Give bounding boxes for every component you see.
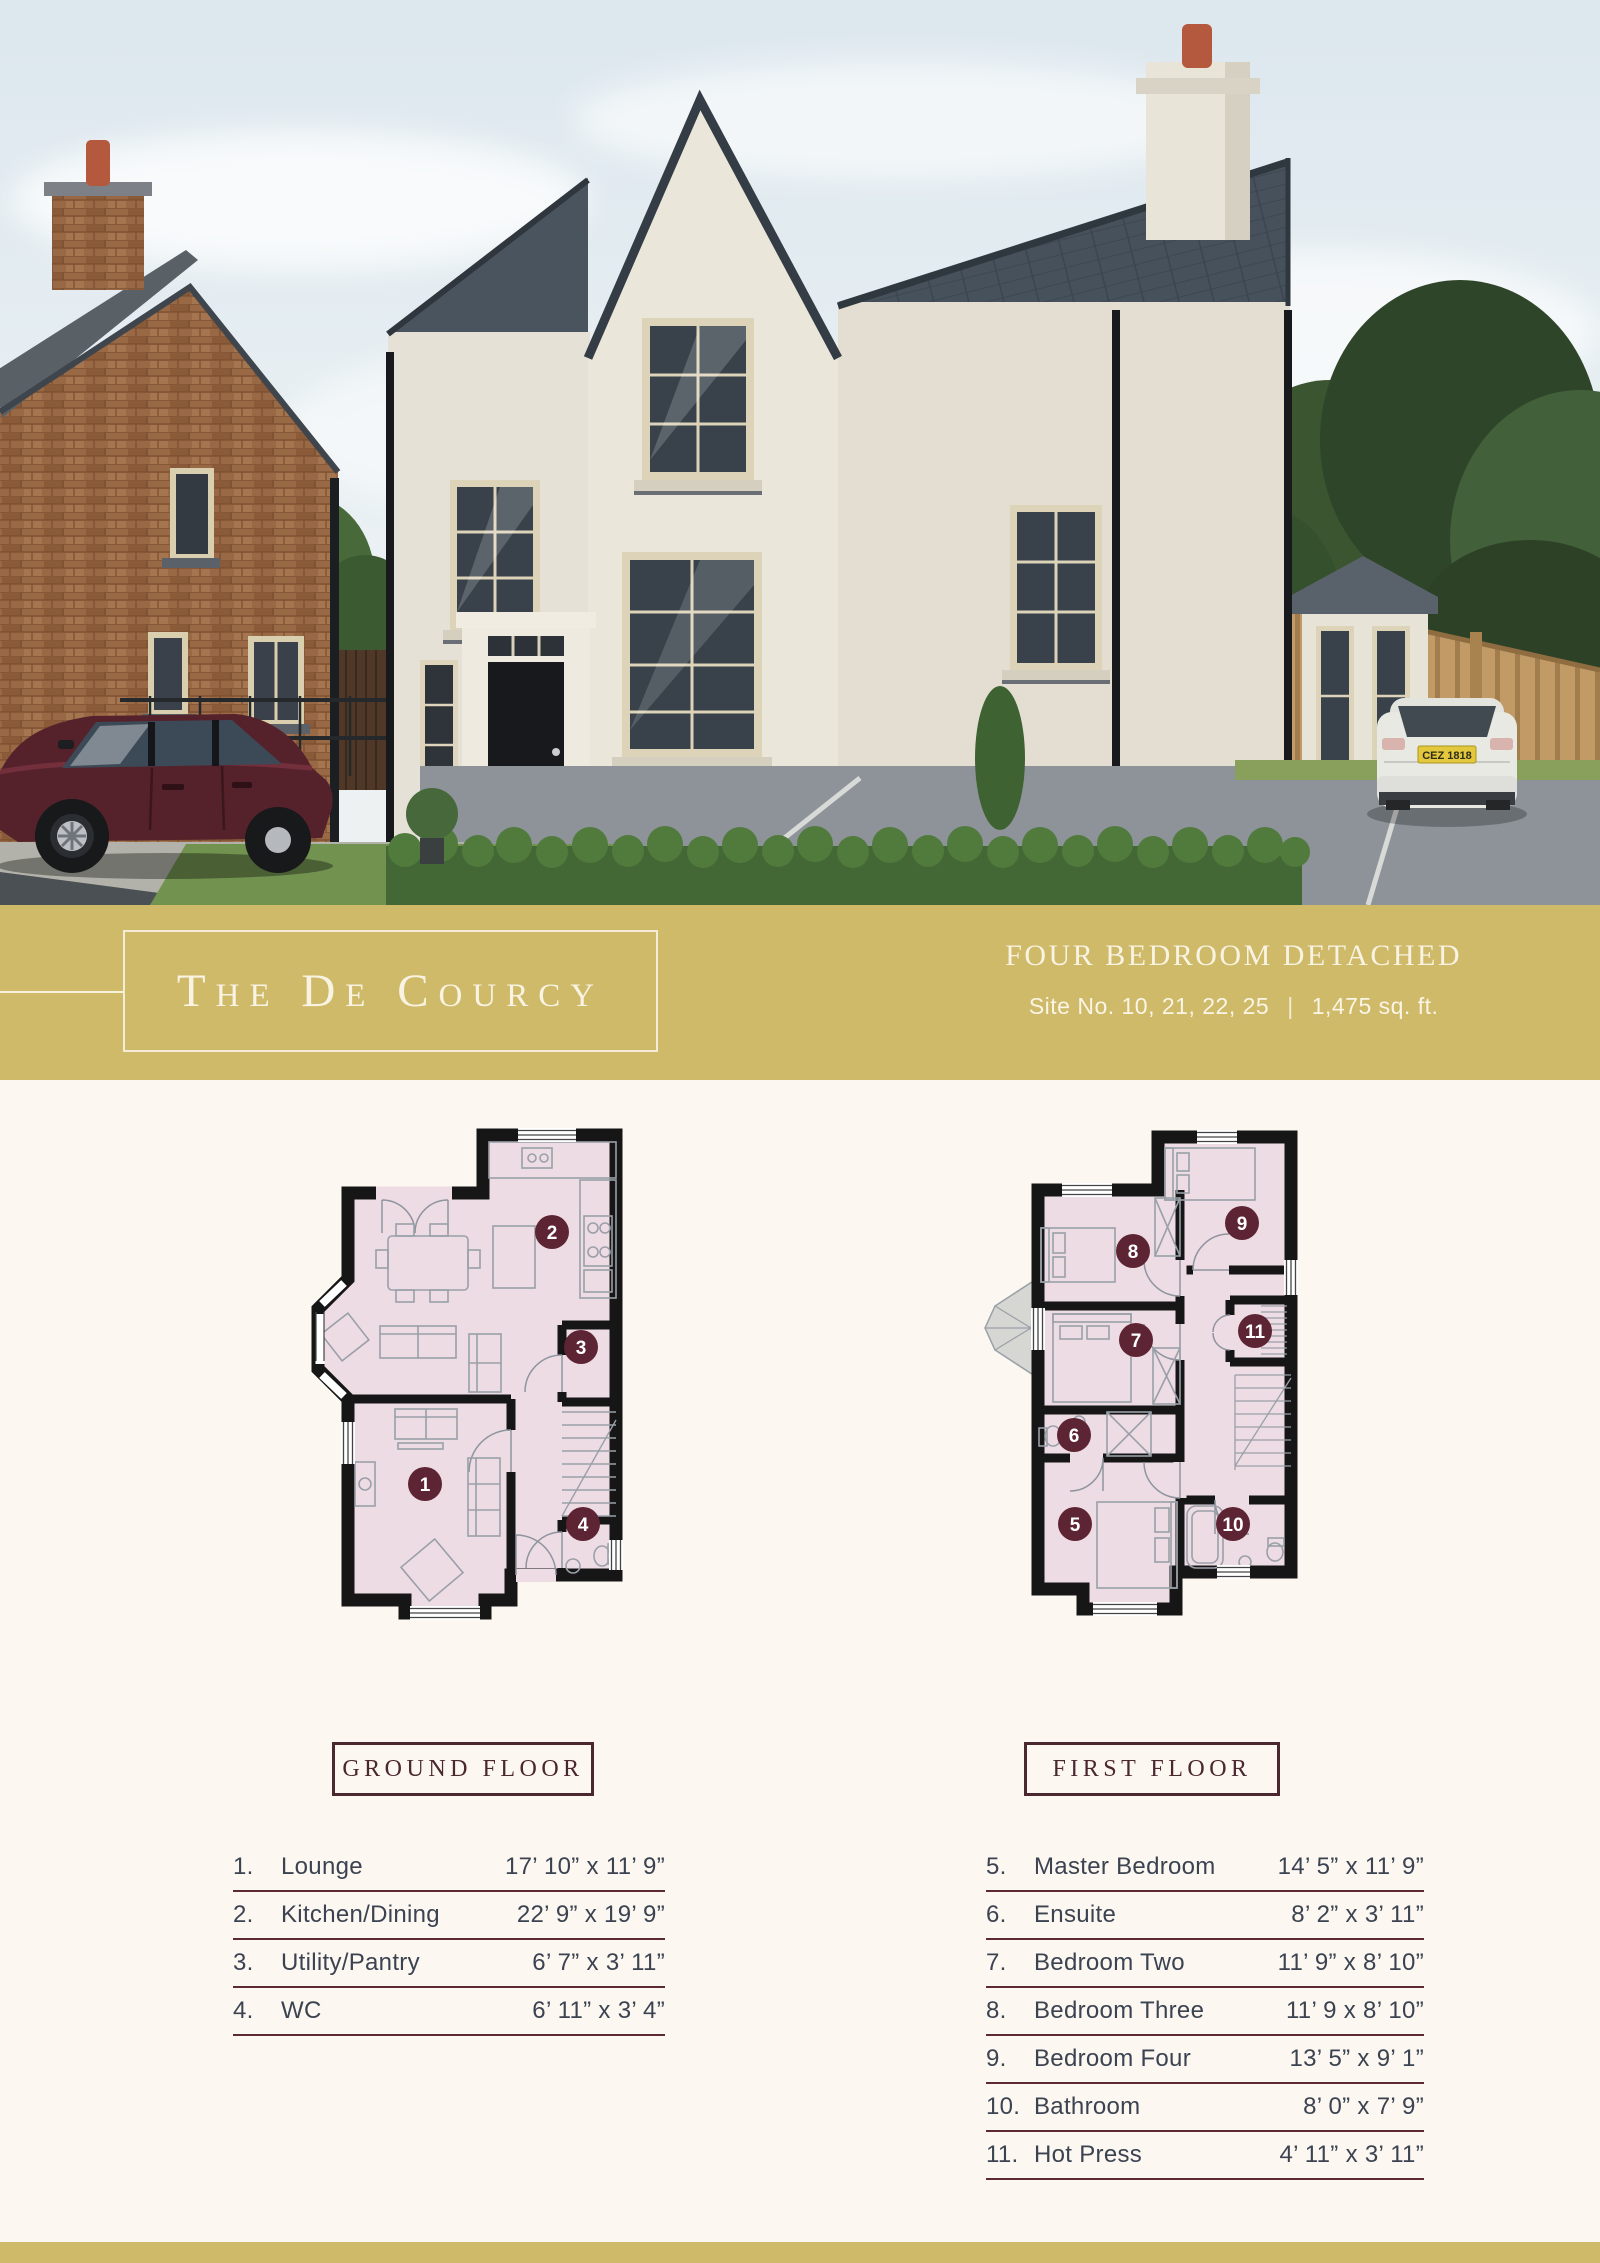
main-block-window xyxy=(1002,505,1110,684)
svg-text:10: 10 xyxy=(1222,1515,1243,1536)
brochure-page: CEZ 1818 xyxy=(0,0,1600,2263)
footer-strip xyxy=(0,2242,1600,2263)
title-box: The De Courcy xyxy=(123,930,658,1052)
room-name: Bedroom Three xyxy=(1034,1997,1286,2025)
ground-floor-table: 1. Lounge 17’ 10” x 11’ 9” 2. Kitchen/Di… xyxy=(233,1844,665,2036)
room-name: Ensuite xyxy=(1034,1901,1291,1929)
house-photo: CEZ 1818 xyxy=(0,0,1600,905)
row-number: 11. xyxy=(986,2141,1034,2169)
table-row: 5. Master Bedroom 14’ 5” x 11’ 9” xyxy=(986,1844,1424,1892)
gable-first-floor-window xyxy=(634,318,762,495)
floorplan-section: 1 2 3 4 xyxy=(0,1080,1600,2242)
first-floor-label: FIRST FLOOR xyxy=(1024,1742,1280,1796)
downpipe xyxy=(1112,310,1120,845)
row-number: 5. xyxy=(986,1853,1034,1881)
room-dimensions: 22’ 9” x 19’ 9” xyxy=(517,1901,665,1929)
slender-tree xyxy=(975,686,1025,830)
table-row: 9. Bedroom Four 13’ 5” x 9’ 1” xyxy=(986,2036,1424,2084)
row-number: 6. xyxy=(986,1901,1034,1929)
brick-house-window-upper xyxy=(162,468,220,568)
room-dimensions: 6’ 7” x 3’ 11” xyxy=(532,1949,665,1977)
room-dimensions: 14’ 5” x 11’ 9” xyxy=(1278,1853,1424,1881)
table-row: 8. Bedroom Three 11’ 9 x 8’ 10” xyxy=(986,1988,1424,2036)
room-dimensions: 17’ 10” x 11’ 9” xyxy=(505,1853,665,1881)
row-number: 2. xyxy=(233,1901,281,1929)
svg-text:1: 1 xyxy=(420,1475,431,1496)
room-dimensions: 13’ 5” x 9’ 1” xyxy=(1290,2045,1424,2073)
gable-ground-floor-window xyxy=(612,552,772,775)
row-number: 7. xyxy=(986,1949,1034,1977)
svg-text:6: 6 xyxy=(1069,1426,1080,1447)
room-dimensions: 11’ 9 x 8’ 10” xyxy=(1286,1997,1424,2025)
license-plate: CEZ 1818 xyxy=(1422,750,1472,762)
room-dimensions: 6’ 11” x 3’ 4” xyxy=(532,1997,665,2025)
site-numbers: Site No. 10, 21, 22, 25 xyxy=(1029,993,1269,1020)
bay-roof xyxy=(985,1278,1038,1378)
room-name: WC xyxy=(281,1997,532,2025)
ground-floor-label: GROUND FLOOR xyxy=(332,1742,594,1796)
room-name: Bathroom xyxy=(1034,2093,1303,2121)
first-floor-table: 5. Master Bedroom 14’ 5” x 11’ 9” 6. Ens… xyxy=(986,1844,1424,2180)
room-name: Bedroom Four xyxy=(1034,2045,1290,2073)
room-name: Kitchen/Dining xyxy=(281,1901,517,1929)
red-car xyxy=(0,714,333,879)
room-name: Master Bedroom xyxy=(1034,1853,1278,1881)
title-banner: The De Courcy FOUR BEDROOM DETACHED Site… xyxy=(0,905,1600,1080)
table-row: 4. WC 6’ 11” x 3’ 4” xyxy=(233,1988,665,2036)
category-heading: FOUR BEDROOM DETACHED xyxy=(1005,939,1462,973)
row-number: 9. xyxy=(986,2045,1034,2073)
room-dimensions: 4’ 11” x 3’ 11” xyxy=(1279,2141,1424,2169)
room-dimensions: 8’ 2” x 3’ 11” xyxy=(1291,1901,1424,1929)
room-name: Lounge xyxy=(281,1853,505,1881)
svg-text:3: 3 xyxy=(576,1338,587,1359)
room-dimensions: 8’ 0” x 7’ 9” xyxy=(1303,2093,1424,2121)
first-floor-plan: 5 6 7 8 9 10 11 xyxy=(975,1110,1310,1630)
row-number: 1. xyxy=(233,1853,281,1881)
svg-text:5: 5 xyxy=(1070,1515,1081,1536)
room-name: Hot Press xyxy=(1034,2141,1279,2169)
banner-details: FOUR BEDROOM DETACHED Site No. 10, 21, 2… xyxy=(1005,939,1462,1020)
site-info: Site No. 10, 21, 22, 25 | 1,475 sq. ft. xyxy=(1005,993,1462,1020)
row-number: 10. xyxy=(986,2093,1034,2121)
row-number: 3. xyxy=(233,1949,281,1977)
table-row: 2. Kitchen/Dining 22’ 9” x 19’ 9” xyxy=(233,1892,665,1940)
separator: | xyxy=(1287,993,1293,1020)
svg-text:8: 8 xyxy=(1128,1242,1139,1263)
house-type-title: The De Courcy xyxy=(177,964,604,1018)
row-number: 4. xyxy=(233,1997,281,2025)
room-name: Utility/Pantry xyxy=(281,1949,532,1977)
room-dimensions: 11’ 9” x 8’ 10” xyxy=(1278,1949,1424,1977)
room-name: Bedroom Two xyxy=(1034,1949,1278,1977)
svg-text:4: 4 xyxy=(578,1515,589,1536)
table-row: 11. Hot Press 4’ 11” x 3’ 11” xyxy=(986,2132,1424,2180)
svg-text:7: 7 xyxy=(1131,1331,1142,1352)
table-row: 3. Utility/Pantry 6’ 7” x 3’ 11” xyxy=(233,1940,665,1988)
svg-text:9: 9 xyxy=(1237,1214,1248,1235)
row-number: 8. xyxy=(986,1997,1034,2025)
downpipe xyxy=(386,352,394,845)
door-handle xyxy=(552,748,560,756)
table-row: 10. Bathroom 8’ 0” x 7’ 9” xyxy=(986,2084,1424,2132)
ground-floor-plan: 1 2 3 4 xyxy=(310,1120,640,1620)
white-car: CEZ 1818 xyxy=(1367,698,1527,827)
table-row: 6. Ensuite 8’ 2” x 3’ 11” xyxy=(986,1892,1424,1940)
table-row: 1. Lounge 17’ 10” x 11’ 9” xyxy=(233,1844,665,1892)
svg-text:11: 11 xyxy=(1245,1322,1266,1343)
table-row: 7. Bedroom Two 11’ 9” x 8’ 10” xyxy=(986,1940,1424,1988)
banner-rule xyxy=(0,991,123,993)
floor-area: 1,475 sq. ft. xyxy=(1312,993,1439,1020)
svg-text:2: 2 xyxy=(547,1223,558,1244)
